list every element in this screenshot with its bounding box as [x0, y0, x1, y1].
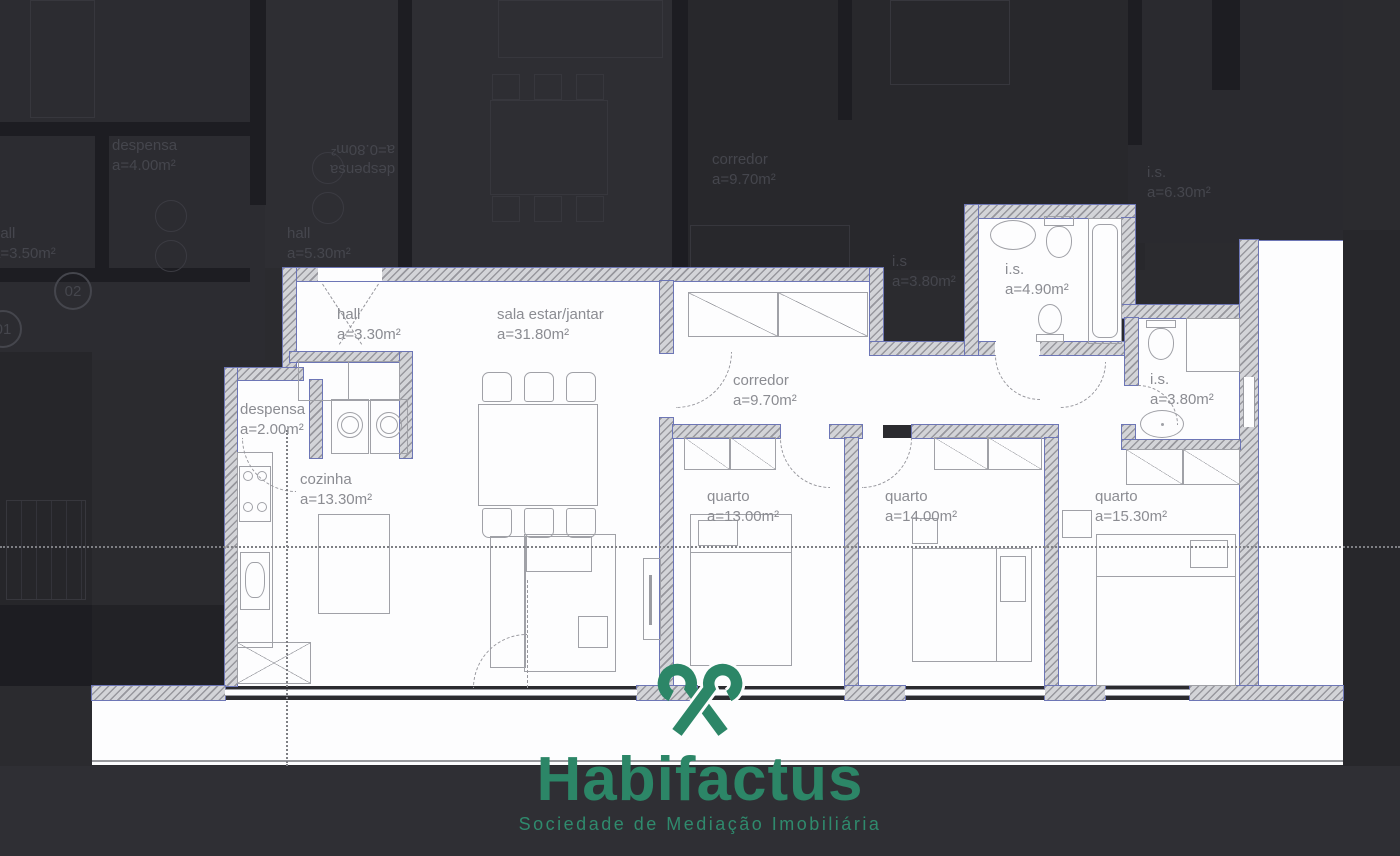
bg-stairs-outline	[6, 500, 86, 600]
toilet-bowl	[1148, 328, 1174, 360]
floor-area-right-strip	[1258, 240, 1343, 686]
bg-room-name: corredor	[712, 151, 768, 168]
room-area: a=9.70m²	[733, 391, 797, 411]
bg-room-name: i.s	[892, 253, 907, 270]
chair	[524, 372, 554, 402]
bg-wall	[1212, 0, 1240, 90]
room-label-corridor: corredor a=9.70m²	[733, 371, 797, 411]
bg-chair-outline	[534, 74, 562, 100]
bed-line	[1097, 576, 1235, 577]
room-name: cozinha	[300, 470, 372, 490]
wardrobe-bedroom1	[730, 437, 776, 470]
room-name: i.s.	[1005, 260, 1069, 280]
kitchen-island	[318, 514, 390, 614]
room-label-wc2: i.s. a=3.80m²	[1150, 370, 1214, 410]
room-area: a=31.80m²	[497, 325, 604, 345]
bg-room-name: despensa	[112, 137, 177, 154]
wall	[1045, 686, 1105, 700]
stove-burner	[243, 471, 253, 481]
section-line-vertical	[286, 430, 288, 766]
room-area: a=3.30m²	[337, 325, 401, 345]
bg-bed-outline	[890, 0, 1010, 85]
washbasin	[990, 220, 1036, 250]
room-label-wc1: i.s. a=4.90m²	[1005, 260, 1069, 300]
room-name: quarto	[1095, 487, 1167, 507]
bidet-tank	[1036, 334, 1064, 342]
bg-room-area: a=5.30m²	[287, 245, 351, 262]
room-name: hall	[337, 305, 401, 325]
bg-cabinet-outline	[30, 0, 95, 118]
bed-line	[996, 549, 997, 661]
bg-room-area: a=6.30m²	[1147, 184, 1211, 201]
bed-pillow	[1000, 556, 1026, 602]
sofa-chaise	[526, 536, 592, 572]
room-name: despensa	[240, 400, 305, 420]
bg-room-label: hall a=3.50m²	[0, 224, 56, 263]
bg-room-label: i.s. a=6.30m²	[1147, 163, 1211, 202]
stove-burner	[243, 502, 253, 512]
room-label-pantry: despensa a=2.00m²	[240, 400, 305, 440]
wall	[830, 425, 862, 438]
unit-marker-02: 02	[54, 272, 92, 310]
bed-pillow	[1190, 540, 1228, 568]
toilet-bowl	[1046, 226, 1072, 258]
bg-room-name: hall	[287, 225, 310, 242]
wall	[1240, 240, 1258, 686]
chair	[482, 508, 512, 538]
bg-room-label: corredor a=9.70m²	[712, 150, 776, 189]
wall	[1125, 318, 1138, 385]
bg-wall	[95, 136, 109, 281]
wall	[660, 281, 673, 353]
bg-washer-circle	[155, 240, 187, 272]
toilet-tank	[1044, 216, 1074, 226]
unit-marker-label: 01	[0, 321, 11, 338]
brand-name: Habifactus	[0, 744, 1400, 815]
wall	[965, 205, 978, 355]
bg-room-patch	[92, 605, 225, 686]
room-name: corredor	[733, 371, 797, 391]
terrace-door-leaf	[527, 580, 528, 688]
washing-machine-drum	[380, 416, 398, 434]
chair	[566, 372, 596, 402]
bg-chair-outline	[492, 74, 520, 100]
corridor-closet	[778, 292, 868, 337]
bg-wall	[1128, 0, 1142, 145]
wall	[1190, 686, 1343, 700]
hall-closet-divider	[348, 362, 349, 400]
room-label-bedroom1: quarto a=13.00m²	[707, 487, 779, 527]
bg-closet-outline	[690, 225, 850, 270]
shower	[1186, 318, 1240, 372]
bg-room-area: a=4.00m²	[112, 157, 176, 174]
window-glazing	[1243, 377, 1255, 427]
room-name: sala estar/jantar	[497, 305, 604, 325]
bg-room-label: despensa a=0.80m²	[330, 140, 395, 179]
wall	[225, 368, 237, 686]
toilet-tank	[1146, 320, 1176, 328]
bg-chair-outline	[576, 74, 604, 100]
bg-room-label: i.s a=3.80m²	[892, 252, 956, 291]
wall	[1122, 305, 1253, 318]
bg-washer-circle	[312, 192, 344, 224]
room-name: quarto	[707, 487, 779, 507]
coffee-table	[578, 616, 608, 648]
bg-sofa-outline	[498, 0, 663, 58]
room-area: a=2.00m²	[240, 420, 305, 440]
bg-room-label: hall a=5.30m²	[287, 224, 351, 263]
section-line-horizontal	[0, 546, 1400, 548]
bathtub-inner	[1092, 224, 1118, 338]
stove-burner	[257, 502, 267, 512]
room-area: a=13.30m²	[300, 490, 372, 510]
kitchen-sink-basin	[245, 562, 265, 598]
wardrobe-bedroom2	[934, 437, 988, 470]
room-label-kitchen: cozinha a=13.30m²	[300, 470, 372, 510]
wardrobe-bedroom3	[1183, 449, 1240, 485]
room-name: quarto	[885, 487, 957, 507]
bg-wall	[0, 605, 92, 686]
room-label-living: sala estar/jantar a=31.80m²	[497, 305, 604, 345]
dining-table	[478, 404, 598, 506]
bg-chair-outline	[492, 196, 520, 222]
bg-room-area: a=3.50m²	[0, 245, 56, 262]
bg-wall	[838, 0, 852, 120]
bidet-bowl	[1038, 304, 1062, 334]
bg-wall	[0, 268, 250, 282]
bg-room-area: a=3.80m²	[892, 273, 956, 290]
bed-line	[691, 552, 791, 553]
room-area: a=14.00m²	[885, 507, 957, 527]
bg-wall	[672, 0, 688, 270]
wall	[1045, 438, 1058, 686]
tv-cabinet	[643, 558, 661, 640]
bg-washer-circle	[155, 200, 187, 232]
chair	[482, 372, 512, 402]
wall	[845, 438, 858, 686]
wall	[1122, 440, 1240, 449]
bg-room-area: a=9.70m²	[712, 171, 776, 188]
room-area: a=3.80m²	[1150, 390, 1214, 410]
wardrobe-bedroom1	[684, 437, 730, 470]
room-area: a=4.90m²	[1005, 280, 1069, 300]
door-opening	[995, 342, 1040, 355]
bg-chair-outline	[576, 196, 604, 222]
bg-room-patch	[1343, 230, 1400, 766]
wardrobe-bedroom2	[988, 437, 1042, 470]
room-name: i.s.	[1150, 370, 1214, 390]
window-glazing	[905, 689, 1045, 696]
brand-tagline: Sociedade de Mediação Imobiliária	[0, 814, 1400, 835]
bg-room-label: despensa a=4.00m²	[112, 136, 177, 175]
wall	[845, 686, 905, 700]
kitchen-cabinet	[237, 642, 311, 684]
door-opening	[318, 268, 382, 281]
washing-machine-drum	[341, 416, 359, 434]
bg-room-area: a=0.80m²	[331, 142, 395, 159]
unit-marker-label: 02	[65, 283, 82, 300]
wall	[660, 418, 673, 686]
hall-closet	[298, 361, 400, 401]
bg-chair-outline	[534, 196, 562, 222]
wardrobe-bedroom3	[1126, 449, 1183, 485]
logo-heart-icon	[650, 648, 750, 744]
room-area: a=13.00m²	[707, 507, 779, 527]
bg-room-name: despensa	[330, 161, 395, 178]
bg-room-name: i.s.	[1147, 164, 1166, 181]
bg-room-name: hall	[0, 225, 15, 242]
room-label-hall: hall a=3.30m²	[337, 305, 401, 345]
window-glazing	[1105, 689, 1190, 696]
tv-screen	[649, 575, 652, 625]
floorplan-canvas: despensa a=4.00m² hall a=3.50m² hall a=5…	[0, 0, 1400, 856]
wall	[1122, 218, 1135, 318]
room-label-bedroom2: quarto a=14.00m²	[885, 487, 957, 527]
bg-table-outline	[490, 100, 608, 195]
nightstand	[1062, 510, 1092, 538]
bg-wall	[250, 0, 266, 205]
bg-wall	[0, 122, 250, 136]
wall	[92, 686, 225, 700]
room-area: a=15.30m²	[1095, 507, 1167, 527]
corridor-closet	[688, 292, 778, 337]
room-label-bedroom3: quarto a=15.30m²	[1095, 487, 1167, 527]
